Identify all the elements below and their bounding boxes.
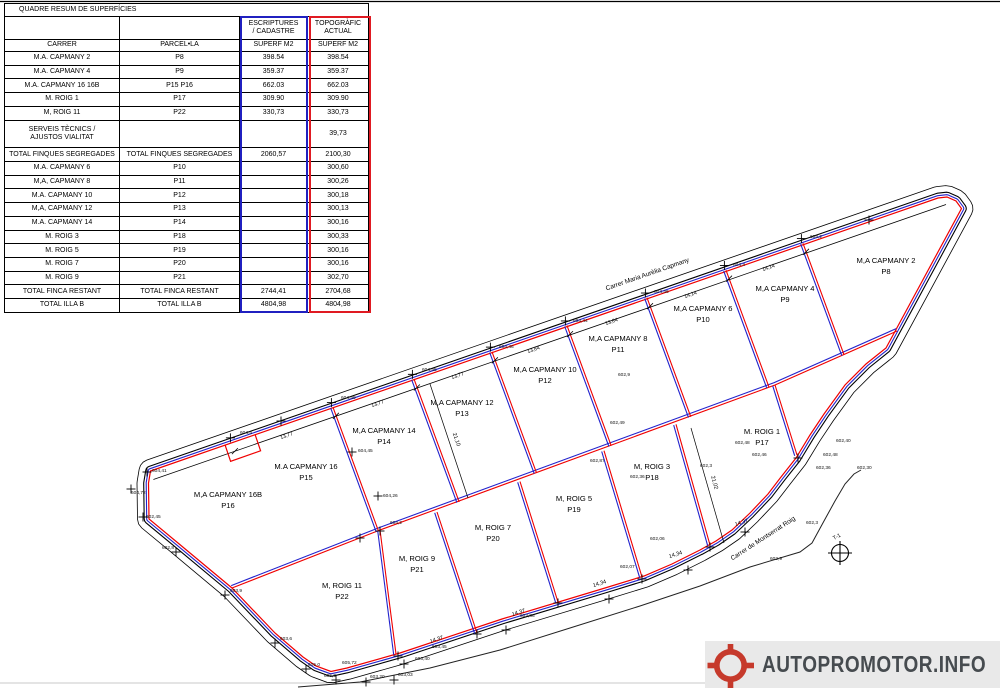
svg-text:602,87: 602,87 [590, 458, 605, 464]
svg-text:604,26: 604,26 [383, 493, 398, 499]
svg-text:605,0: 605,0 [324, 673, 336, 679]
svg-text:602,3: 602,3 [806, 520, 818, 526]
svg-text:604,4: 604,4 [240, 430, 252, 436]
svg-text:603,40: 603,40 [415, 656, 430, 662]
svg-text:M, ROIG 5: M, ROIG 5 [556, 494, 592, 503]
svg-text:M,A CAPMANY 2: M,A CAPMANY 2 [857, 256, 916, 265]
svg-text:M,A CAPMANY 14: M,A CAPMANY 14 [352, 426, 415, 435]
svg-text:P15: P15 [299, 473, 313, 482]
svg-text:604,44: 604,44 [573, 318, 588, 324]
svg-text:602,9: 602,9 [770, 556, 782, 562]
svg-text:P10: P10 [696, 315, 710, 324]
svg-text:602,45: 602,45 [146, 514, 161, 520]
svg-text:605,0: 605,0 [308, 662, 320, 668]
svg-text:P13: P13 [455, 409, 469, 418]
svg-text:M, ROIG 3: M, ROIG 3 [634, 462, 670, 471]
svg-text:M,A CAPMANY 6: M,A CAPMANY 6 [674, 304, 733, 313]
svg-text:M,A CAPMANY 8: M,A CAPMANY 8 [589, 334, 648, 343]
svg-text:602,49: 602,49 [610, 420, 625, 426]
svg-text:602,40: 602,40 [836, 438, 851, 444]
svg-text:M,A CAPMANY 10: M,A CAPMANY 10 [513, 365, 576, 374]
svg-text:604,4: 604,4 [733, 262, 745, 268]
svg-text:602,3: 602,3 [700, 463, 712, 469]
svg-text:M,A CAPMANY 4: M,A CAPMANY 4 [756, 284, 815, 293]
svg-text:P9: P9 [780, 295, 789, 304]
svg-text:M, ROIG 9: M, ROIG 9 [399, 554, 435, 563]
svg-text:P20: P20 [486, 534, 500, 543]
svg-text:602,48: 602,48 [823, 452, 838, 458]
svg-text:P11: P11 [612, 345, 625, 354]
svg-text:P14: P14 [377, 437, 391, 446]
svg-text:M.A CAPMANY 16: M.A CAPMANY 16 [274, 462, 337, 471]
svg-text:604,46: 604,46 [499, 344, 514, 350]
svg-text:M. ROIG 1: M. ROIG 1 [744, 427, 780, 436]
svg-text:M, ROIG 11: M, ROIG 11 [322, 581, 362, 590]
svg-text:602,9: 602,9 [618, 372, 630, 378]
svg-text:M, ROIG 7: M, ROIG 7 [475, 523, 511, 532]
svg-text:604,45: 604,45 [422, 367, 437, 373]
svg-text:P22: P22 [335, 592, 349, 601]
svg-text:604,49: 604,49 [341, 395, 356, 401]
svg-text:P16: P16 [221, 501, 235, 510]
svg-text:604,2: 604,2 [810, 234, 822, 240]
svg-text:602,07: 602,07 [620, 564, 635, 570]
svg-text:P17: P17 [755, 438, 769, 447]
svg-text:P19: P19 [567, 505, 581, 514]
svg-text:P21: P21 [410, 565, 424, 574]
svg-text:602,36: 602,36 [630, 474, 645, 480]
svg-text:P12: P12 [538, 376, 552, 385]
svg-text:602,36: 602,36 [816, 465, 831, 471]
svg-text:602,06: 602,06 [650, 536, 665, 542]
svg-text:604,46: 604,46 [654, 289, 669, 295]
svg-text:604,72: 604,72 [131, 490, 146, 496]
svg-text:603,6: 603,6 [280, 636, 292, 642]
svg-text:602,48: 602,48 [735, 440, 750, 446]
svg-text:603,9: 603,9 [230, 588, 242, 594]
svg-text:T-1: T-1 [832, 533, 842, 542]
svg-text:602,86: 602,86 [520, 613, 535, 619]
svg-text:604,2: 604,2 [390, 520, 402, 526]
svg-text:602,46: 602,46 [752, 452, 767, 458]
svg-text:M,A CAPMANY 16B: M,A CAPMANY 16B [194, 490, 262, 499]
svg-text:602,8: 602,8 [162, 545, 174, 551]
svg-text:P18: P18 [645, 473, 659, 482]
svg-text:604,45: 604,45 [358, 448, 373, 454]
svg-text:603,45: 603,45 [432, 644, 447, 650]
svg-text:602,30: 602,30 [857, 465, 872, 471]
svg-text:603,20: 603,20 [370, 674, 385, 680]
svg-text:M,A CAPMANY 12: M,A CAPMANY 12 [430, 398, 493, 407]
svg-text:P8: P8 [881, 267, 890, 276]
svg-text:605,72: 605,72 [342, 660, 357, 666]
svg-text:604,41: 604,41 [152, 468, 167, 474]
svg-text:603,03: 603,03 [398, 672, 413, 678]
